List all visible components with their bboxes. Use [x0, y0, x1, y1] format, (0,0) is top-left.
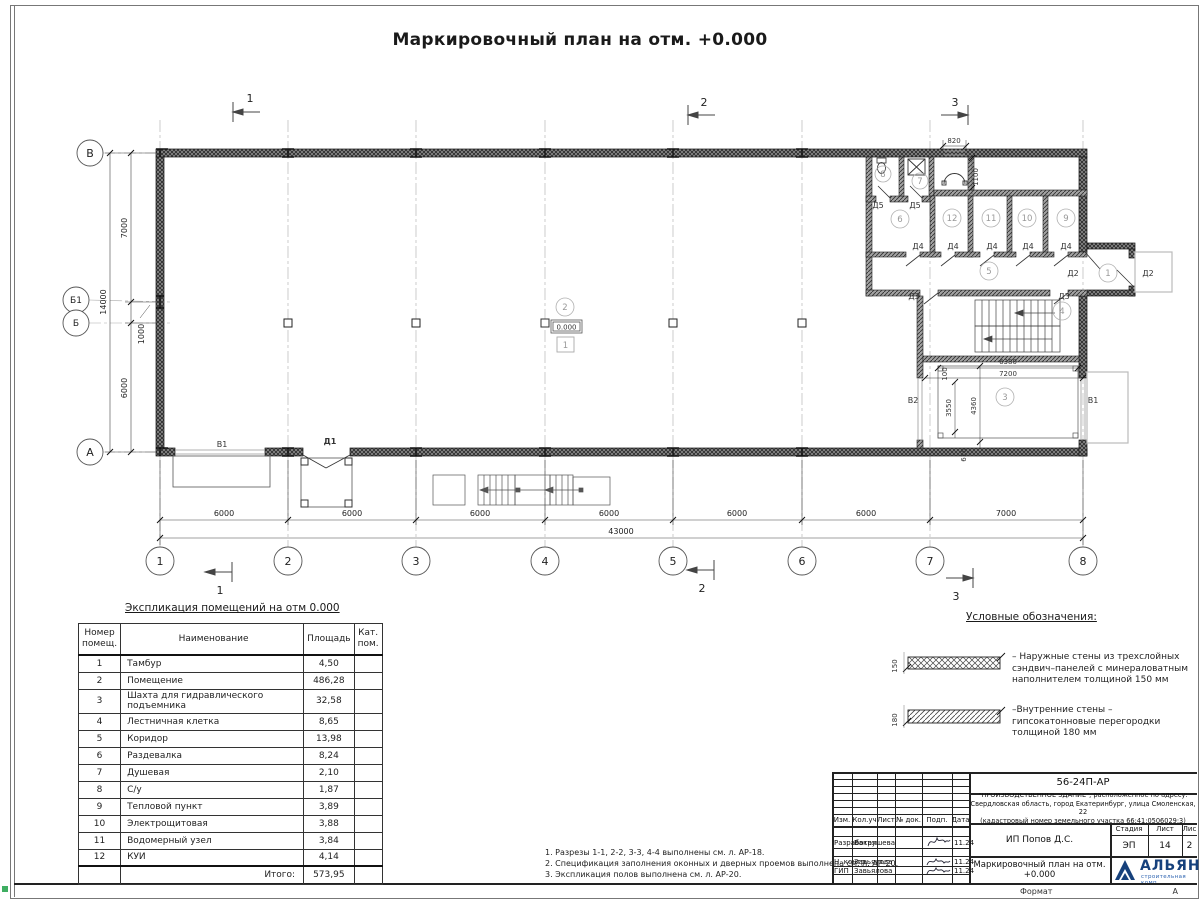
dim-1100: 1100 [972, 168, 980, 186]
axis-a: А [86, 446, 94, 459]
table-row: 8С/у1,87 [79, 781, 383, 798]
axis-6: 6 [799, 555, 806, 568]
room-4: 4 [1059, 307, 1064, 317]
axis-2: 2 [285, 555, 292, 568]
room-11: 11 [986, 214, 997, 224]
section-top-2: 2 [701, 96, 708, 109]
door-label-d4-3: Д4 [986, 242, 997, 251]
dim-bottom-4: 6000 [599, 509, 619, 518]
column-marker [541, 319, 549, 327]
dim-3550: 3550 [945, 399, 953, 417]
section-markers-top [233, 102, 968, 125]
door-label-d5-1: Д5 [872, 201, 883, 210]
table-row: 7Душевая2,10 [79, 764, 383, 781]
drawing-sheet: ФорматА Маркировочный план на отм. +0.00… [0, 0, 1200, 900]
dim-left-7000: 7000 [120, 218, 129, 238]
dim-bottom-6: 6000 [856, 509, 876, 518]
table-row: 3Шахта для гидравлического подъемника32,… [79, 689, 383, 713]
door-label-d1: Д1 [324, 437, 337, 446]
room-1: 1 [1105, 269, 1110, 279]
legend-title: Условные обозначения: [966, 611, 1097, 623]
col-header-num: Номерпомещ. [79, 624, 121, 656]
dim-bottom-3: 6000 [470, 509, 490, 518]
table-row: 5Коридор13,98 [79, 730, 383, 747]
left-dimension-lines [105, 150, 156, 455]
section-top-3: 3 [952, 96, 959, 109]
note-3: 3. Экспликация полов выполнена см. л. АР… [545, 869, 898, 880]
door-label-d5-2: Д5 [909, 201, 920, 210]
dim-total-bottom: 43000 [608, 527, 633, 536]
col-header-name: Наименование [121, 624, 304, 656]
table-row: 1Тамбур4,50 [79, 655, 383, 672]
table-row: 6Раздевалка8,24 [79, 747, 383, 764]
dim-bottom-1: 6000 [214, 509, 234, 518]
dim-7200: 7200 [999, 370, 1017, 378]
col-header-cat: Кат.пом. [354, 624, 382, 656]
axis-v: В [86, 147, 94, 160]
dim-bottom-7: 7000 [996, 509, 1016, 518]
room-3: 3 [1002, 393, 1007, 403]
door-label-d2-left: Д2 [1067, 269, 1078, 278]
table-row: 9Тепловой пункт3,89 [79, 798, 383, 815]
dim-left-6000: 6000 [120, 378, 129, 398]
explication-table: Номерпомещ. Наименование Площадь Кат.пом… [78, 623, 383, 885]
dim-610: 610 [960, 448, 968, 461]
axis-5: 5 [670, 555, 677, 568]
legend-item-interior-walls: –Внутренние стены – гипсокатонновые пере… [1012, 705, 1200, 740]
axis-b1: Б1 [70, 296, 82, 306]
legend-item-exterior-walls: – Наружные стены из трехслойных сэндвич–… [1012, 652, 1200, 687]
legend-dim-150: 150 [891, 659, 899, 672]
table-row: 11Водомерный узел3,84 [79, 832, 383, 849]
col-header-area: Площадь [304, 624, 355, 656]
door-label-d2-right: Д2 [1142, 269, 1153, 278]
dim-6380: 6380 [999, 358, 1017, 366]
legend-bar-interior [903, 705, 1005, 728]
section-bottom-1: 1 [217, 584, 224, 597]
drawing-notes: 1. Разрезы 1-1, 2-2, 3-3, 4-4 выполнены … [545, 847, 898, 880]
stairs [975, 300, 1060, 352]
washbasin-icon [942, 174, 967, 186]
shower-cabin-icon [908, 159, 925, 175]
gate-label-v1-bottom: В1 [217, 440, 228, 449]
room-9: 9 [1063, 214, 1068, 224]
room-10: 10 [1022, 214, 1033, 224]
explication-title: Экспликация помещений на отм 0.000 [125, 602, 340, 614]
ibeam-column-icons [156, 149, 808, 456]
section-bottom-3: 3 [953, 590, 960, 603]
door-label-d4-1: Д4 [912, 242, 923, 251]
section-bottom-2: 2 [699, 582, 706, 595]
left-axis-bubbles [63, 140, 103, 465]
note-2: 2. Спецификация заполнения оконных и две… [545, 858, 898, 869]
axis-b: Б [73, 319, 79, 329]
table-row: 2Помещение486,28 [79, 672, 383, 689]
floor-type-mark: 1 [563, 341, 568, 351]
door-label-d3-right: Д3 [1058, 292, 1069, 301]
axis-8: 8 [1080, 555, 1087, 568]
door-label-d4-5: Д4 [1060, 242, 1071, 251]
dim-left-1000: 1000 [137, 324, 146, 344]
door-label-d4-4: Д4 [1022, 242, 1033, 251]
legend-bar-exterior [903, 652, 1005, 674]
room-8: 8 [880, 170, 885, 180]
table-row: 10Электрощитовая3,88 [79, 815, 383, 832]
legend-dim-180: 180 [891, 713, 899, 726]
room-2: 2 [562, 303, 567, 313]
note-1: 1. Разрезы 1-1, 2-2, 3-3, 4-4 выполнены … [545, 847, 898, 858]
door-label-d4-2: Д4 [947, 242, 958, 251]
table-row: 4Лестничная клетка8,65 [79, 713, 383, 730]
dim-bottom-2: 6000 [342, 509, 362, 518]
room-5: 5 [986, 267, 991, 277]
room-12: 12 [947, 214, 958, 224]
room-7: 7 [917, 177, 922, 187]
elevation-mark: 0.000 [556, 324, 576, 332]
room-bubbles [556, 166, 1117, 406]
axis-1: 1 [157, 555, 164, 568]
axis-3: 3 [413, 555, 420, 568]
table-total-row: Итого:573,95 [79, 866, 383, 884]
dim-4360: 4360 [970, 397, 978, 415]
dim-100: 100 [941, 367, 949, 380]
exterior-stairs [433, 475, 610, 505]
section-top-1: 1 [247, 92, 254, 105]
axis-4: 4 [542, 555, 549, 568]
table-row: 12КУИ4,14 [79, 849, 383, 866]
door-label-d3-left: Д3 [908, 292, 919, 301]
dim-total-left: 14000 [99, 289, 108, 314]
dim-820: 820 [947, 137, 960, 145]
room-6: 6 [897, 215, 902, 225]
axis-7: 7 [927, 555, 934, 568]
dim-bottom-5: 6000 [727, 509, 747, 518]
gate-label-v1-right: В1 [1088, 396, 1099, 405]
gate-label-v2: В2 [908, 396, 919, 405]
section-markers-bottom [205, 560, 973, 588]
